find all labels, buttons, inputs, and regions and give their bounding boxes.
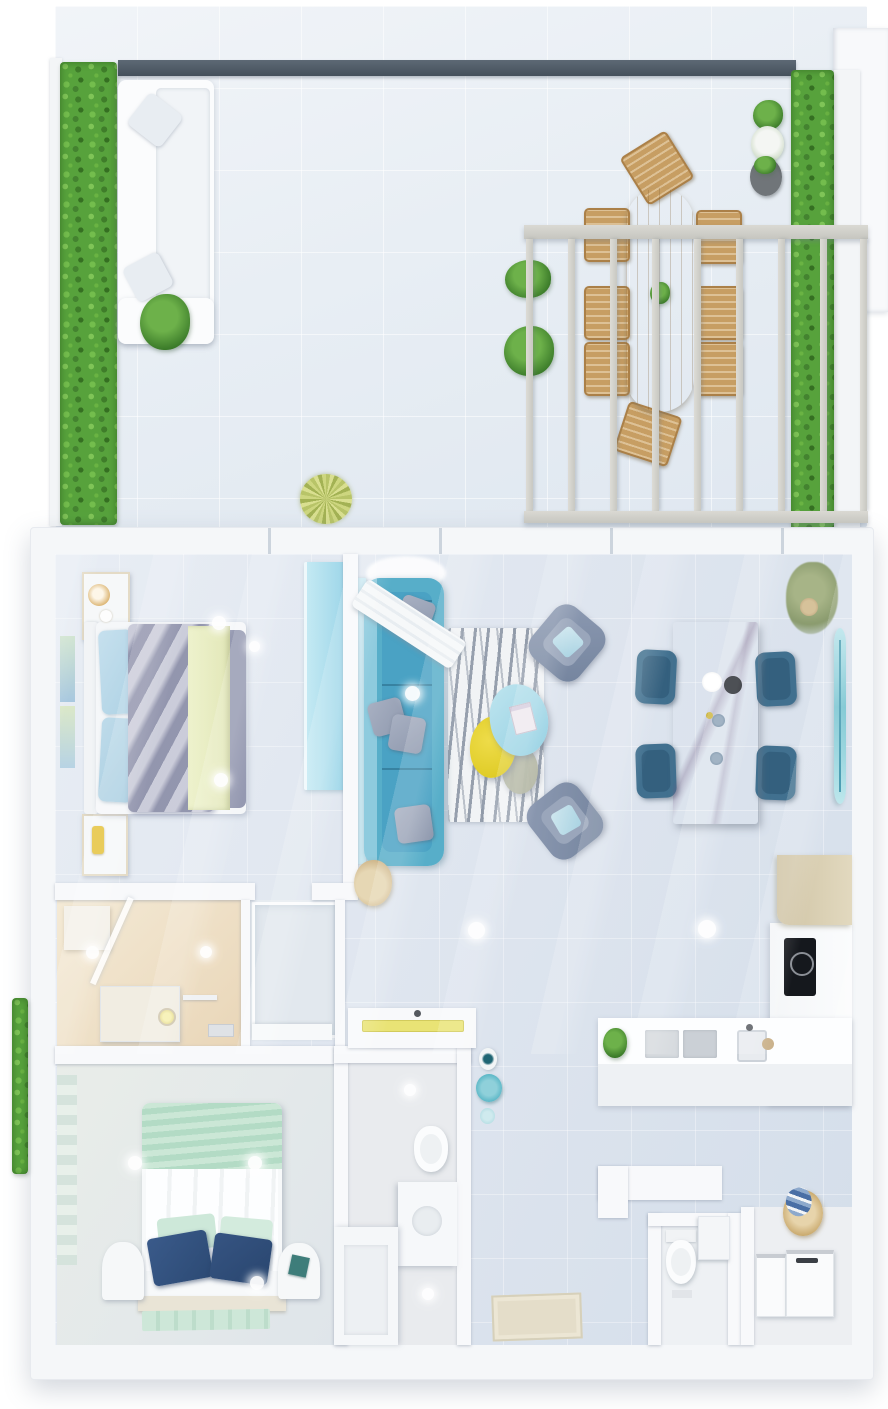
- wall-bathroom2-top: [334, 1046, 471, 1063]
- wall-bathroom1-divider: [241, 900, 250, 1046]
- sofa-pillow-3: [387, 713, 427, 754]
- bathroom2-toilet-seat: [420, 1134, 442, 1164]
- table-lamp: [88, 584, 110, 606]
- dining-chair-3: [755, 651, 798, 707]
- ceiling-light: [249, 641, 260, 652]
- wall-corridor-left: [335, 900, 345, 1046]
- pergola-beam-bottom: [524, 511, 868, 523]
- hall-desk-return: [598, 1166, 628, 1218]
- pergola-slat: [694, 239, 701, 511]
- bed2-navy-pillow-left: [146, 1229, 213, 1287]
- table-deco-sprig: [706, 712, 713, 719]
- potted-plant-dark-pot-leaves: [754, 156, 776, 174]
- surfboard-stripe: [839, 640, 841, 792]
- plate-white: [702, 672, 722, 692]
- toy-on-nightstand: [92, 826, 104, 854]
- bedroom2-rug: [142, 1309, 270, 1331]
- kitchen-jar: [762, 1038, 774, 1050]
- potted-plant-by-sofa: [140, 294, 190, 350]
- bed1-mattress-edge: [230, 630, 246, 808]
- hedge-left: [60, 62, 117, 525]
- dining-chair-2: [635, 743, 677, 798]
- console-yellow-tray: [362, 1020, 464, 1032]
- kitchen-plant: [603, 1028, 627, 1058]
- hedge-outside-left: [12, 998, 28, 1174]
- ceiling-light: [250, 1276, 264, 1290]
- floor-plan-scene: [0, 0, 888, 1409]
- dining-chair-1: [635, 649, 678, 705]
- laundry-wall-left: [741, 1207, 754, 1345]
- wc-mat: [672, 1290, 692, 1298]
- entry-vase-small-white: [479, 1048, 497, 1070]
- ceiling-light: [200, 946, 212, 958]
- ceiling-light: [468, 922, 485, 939]
- wc-toilet-seat: [671, 1248, 691, 1276]
- ceiling-light: [422, 1288, 434, 1300]
- bedroom1-wall-art-1: [60, 636, 75, 702]
- entry-vase-small-teal: [480, 1108, 495, 1124]
- bedroom1-wall-art-2: [60, 706, 75, 768]
- nightstand-bottom: [82, 814, 128, 876]
- bathroom2-sink: [412, 1206, 442, 1236]
- wall-bathrooms-bottom: [55, 1046, 345, 1064]
- ceiling-light: [214, 773, 228, 787]
- plate-black: [724, 676, 742, 694]
- dryer-slot: [796, 1258, 818, 1263]
- wc-wall-cabinet: [698, 1216, 730, 1260]
- sofa-pillow-4: [394, 804, 435, 845]
- kitchen-counter-bottom: [598, 1018, 852, 1106]
- bed2-navy-pillow-right: [209, 1232, 273, 1286]
- nightstand-cup: [100, 610, 112, 622]
- cutting-board-2: [683, 1030, 717, 1058]
- table-deco-vase-2: [710, 752, 723, 765]
- dried-plant-vase: [354, 860, 392, 906]
- bedroom2-window-light: [57, 1075, 77, 1265]
- bath1-panel: [208, 1024, 234, 1037]
- hanging-plant-pot: [800, 598, 818, 616]
- ceiling-light: [404, 1084, 416, 1096]
- washing-machine-dial: [158, 1008, 176, 1026]
- ceiling-light: [248, 1156, 262, 1170]
- pergola-slat: [778, 239, 785, 511]
- towel-bar: [183, 995, 217, 1000]
- ceiling-light: [405, 686, 420, 701]
- entry-doormat: [491, 1292, 583, 1341]
- table-deco-vase-1: [712, 714, 725, 727]
- kitchen-faucet: [746, 1024, 753, 1031]
- pergola-slat: [860, 239, 867, 511]
- wc-wall-left: [648, 1213, 661, 1345]
- pergola-beam-top: [524, 225, 868, 239]
- top-wall-windows: [100, 528, 800, 554]
- wall-bedroom1-bottom: [55, 883, 255, 900]
- dining-chair-4: [755, 745, 797, 800]
- entry-vase-teal-large: [476, 1074, 502, 1102]
- pergola-slat: [526, 239, 533, 511]
- pergola-slat: [568, 239, 575, 511]
- cutting-board-1: [645, 1030, 679, 1058]
- roof-beam-top: [118, 60, 796, 76]
- ceiling-light: [212, 616, 226, 630]
- bathroom2-shower-inner: [344, 1245, 388, 1335]
- wardrobe-blue: [304, 562, 347, 790]
- ceiling-light: [698, 920, 716, 938]
- wall-bathroom2-right: [457, 1046, 471, 1345]
- ornamental-grass-plant: [300, 474, 352, 524]
- kitchen-cabinet-beige: [777, 855, 852, 925]
- ceiling-light: [128, 1156, 142, 1170]
- shower-enclosure: [252, 902, 338, 1038]
- cooktop-ring: [790, 952, 814, 976]
- pergola-slat: [652, 239, 659, 511]
- wall-bedroom1-bottom-b: [312, 883, 358, 900]
- pergola-slat: [736, 239, 743, 511]
- ceiling-light: [86, 946, 99, 959]
- console-knob: [414, 1010, 421, 1017]
- shower-tray: [252, 1024, 332, 1040]
- pergola: [524, 225, 868, 523]
- bathroom1-shelf: [64, 906, 110, 950]
- washer: [756, 1254, 786, 1317]
- pergola-slat: [820, 239, 827, 511]
- nightstand2-left: [102, 1242, 144, 1300]
- pergola-slat: [610, 239, 617, 511]
